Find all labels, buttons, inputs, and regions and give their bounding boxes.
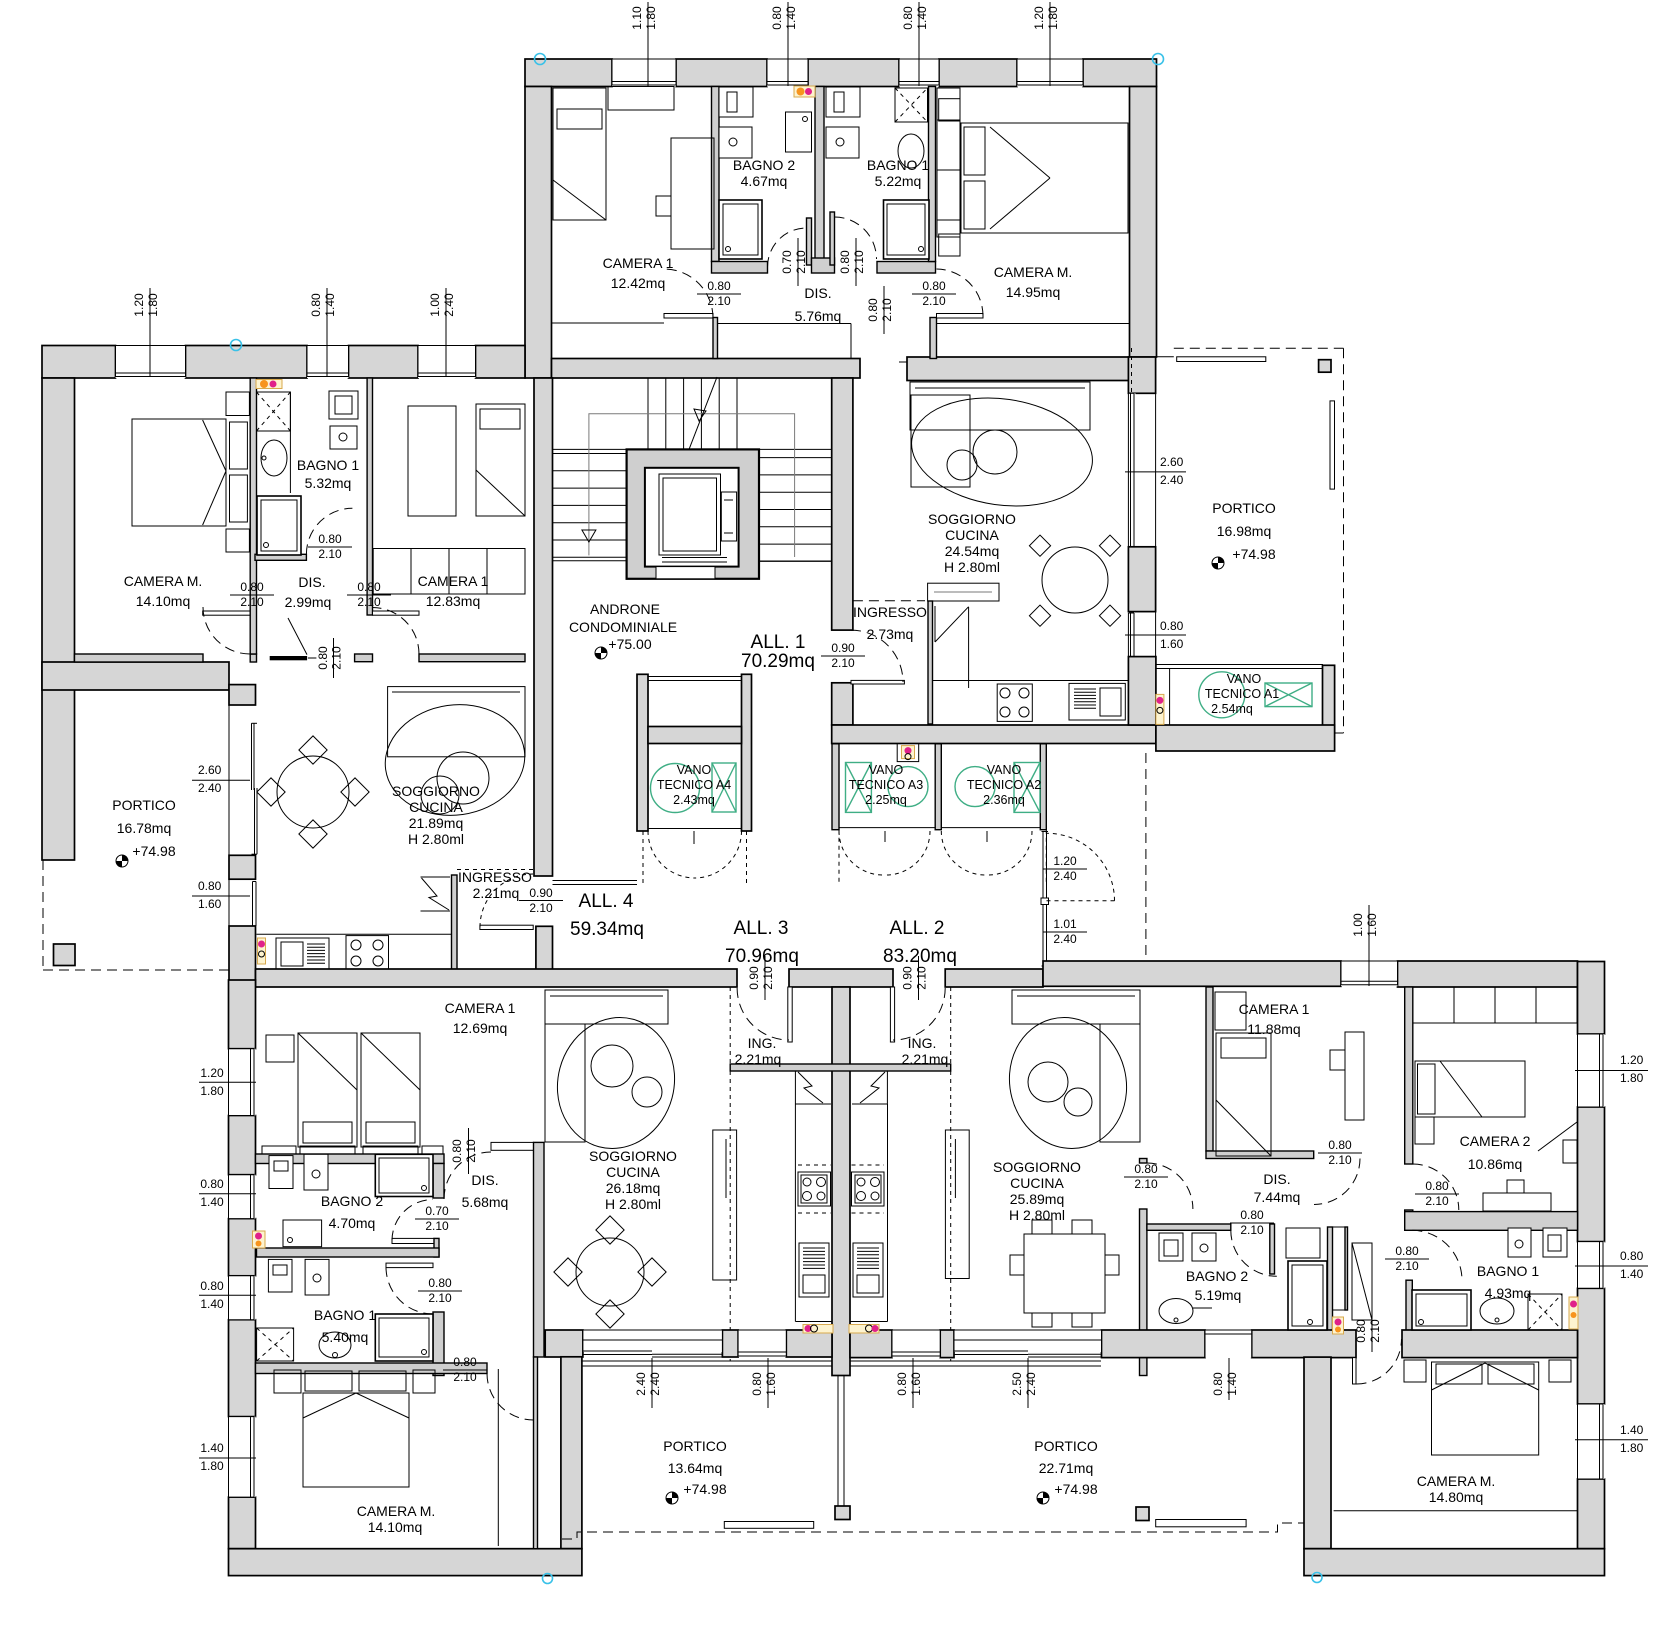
svg-text:1.80: 1.80 <box>200 1084 224 1098</box>
svg-text:0.70: 0.70 <box>425 1204 449 1218</box>
svg-text:25.89mq: 25.89mq <box>1010 1191 1064 1207</box>
svg-text:TECNICO A2: TECNICO A2 <box>967 778 1041 792</box>
svg-text:0.80: 0.80 <box>450 1139 464 1163</box>
svg-text:2.10: 2.10 <box>1368 1319 1382 1343</box>
svg-text:1.20: 1.20 <box>132 293 146 317</box>
svg-text:0.80: 0.80 <box>198 879 222 893</box>
svg-text:2.21mq: 2.21mq <box>473 885 520 901</box>
svg-text:CUCINA: CUCINA <box>945 527 999 543</box>
svg-text:0.80: 0.80 <box>1425 1179 1449 1193</box>
svg-text:0.80: 0.80 <box>453 1355 477 1369</box>
svg-text:VANO: VANO <box>1227 672 1262 686</box>
svg-text:CUCINA: CUCINA <box>606 1164 660 1180</box>
svg-text:1.00: 1.00 <box>428 293 442 317</box>
svg-text:+74.98: +74.98 <box>132 843 175 859</box>
svg-text:2.40: 2.40 <box>442 293 456 317</box>
svg-text:BAGNO 1: BAGNO 1 <box>314 1307 376 1323</box>
svg-text:2.10: 2.10 <box>428 1291 452 1305</box>
svg-text:2.10: 2.10 <box>707 294 731 308</box>
svg-text:0.80: 0.80 <box>1395 1244 1419 1258</box>
svg-text:+74.98: +74.98 <box>683 1481 726 1497</box>
svg-text:2.40: 2.40 <box>648 1372 662 1396</box>
svg-text:DIS.: DIS. <box>804 285 831 301</box>
svg-text:1.80: 1.80 <box>1046 6 1060 30</box>
svg-text:59.34mq: 59.34mq <box>570 919 644 940</box>
svg-text:2.10: 2.10 <box>240 595 264 609</box>
svg-text:14.10mq: 14.10mq <box>136 593 190 609</box>
svg-text:12.69mq: 12.69mq <box>453 1020 507 1036</box>
svg-text:0.80: 0.80 <box>1240 1208 1264 1222</box>
svg-text:ALL. 3: ALL. 3 <box>734 918 789 939</box>
svg-text:2.10: 2.10 <box>880 298 894 322</box>
svg-text:2.40: 2.40 <box>634 1372 648 1396</box>
svg-text:5.76mq: 5.76mq <box>795 308 842 324</box>
svg-text:H 2.80ml: H 2.80ml <box>408 831 464 847</box>
svg-text:2.10: 2.10 <box>1134 1177 1158 1191</box>
svg-text:2.10: 2.10 <box>425 1219 449 1233</box>
svg-text:0.80: 0.80 <box>309 293 323 317</box>
svg-text:2.36mq: 2.36mq <box>983 793 1025 807</box>
svg-text:0.80: 0.80 <box>838 250 852 274</box>
svg-text:TECNICO A3: TECNICO A3 <box>849 778 923 792</box>
svg-text:CAMERA M.: CAMERA M. <box>357 1503 436 1519</box>
svg-text:0.90: 0.90 <box>901 966 915 990</box>
svg-text:0.80: 0.80 <box>922 279 946 293</box>
svg-text:ING.: ING. <box>908 1035 937 1051</box>
svg-text:H 2.80ml: H 2.80ml <box>605 1196 661 1212</box>
svg-text:2.99mq: 2.99mq <box>285 594 332 610</box>
svg-text:0.80: 0.80 <box>1211 1372 1225 1396</box>
svg-text:2.40: 2.40 <box>198 781 222 795</box>
svg-text:24.54mq: 24.54mq <box>945 543 999 559</box>
svg-text:CAMERA M.: CAMERA M. <box>994 264 1073 280</box>
svg-text:ALL. 1: ALL. 1 <box>751 632 806 653</box>
svg-text:12.42mq: 12.42mq <box>611 275 665 291</box>
svg-text:DIS.: DIS. <box>298 574 325 590</box>
svg-text:14.95mq: 14.95mq <box>1006 284 1060 300</box>
svg-text:1.40: 1.40 <box>323 293 337 317</box>
svg-text:0.80: 0.80 <box>1134 1162 1158 1176</box>
svg-text:PORTICO: PORTICO <box>1212 500 1276 516</box>
svg-text:1.60: 1.60 <box>1365 913 1379 937</box>
svg-text:22.71mq: 22.71mq <box>1039 1460 1093 1476</box>
svg-text:4.70mq: 4.70mq <box>329 1215 376 1231</box>
svg-text:2.10: 2.10 <box>357 595 381 609</box>
svg-text:1.10: 1.10 <box>630 6 644 30</box>
svg-text:2.10: 2.10 <box>915 966 929 990</box>
svg-text:1.80: 1.80 <box>1620 1441 1644 1455</box>
svg-text:11.88mq: 11.88mq <box>1247 1021 1300 1037</box>
svg-text:BAGNO 1: BAGNO 1 <box>867 157 929 173</box>
svg-text:1.80: 1.80 <box>146 293 160 317</box>
svg-text:2.10: 2.10 <box>922 294 946 308</box>
svg-text:0.70: 0.70 <box>780 250 794 274</box>
svg-text:1.40: 1.40 <box>1620 1267 1644 1281</box>
svg-text:1.01: 1.01 <box>1053 917 1077 931</box>
svg-text:CAMERA M.: CAMERA M. <box>124 573 203 589</box>
svg-text:BAGNO 1: BAGNO 1 <box>297 457 359 473</box>
svg-text:70.96mq: 70.96mq <box>725 946 799 967</box>
svg-text:1.20: 1.20 <box>1053 854 1077 868</box>
svg-text:2.10: 2.10 <box>852 250 866 274</box>
svg-text:1.80: 1.80 <box>644 6 658 30</box>
svg-text:1.20: 1.20 <box>1620 1053 1644 1067</box>
svg-text:2.10: 2.10 <box>1425 1194 1449 1208</box>
svg-text:DIS.: DIS. <box>1263 1171 1290 1187</box>
svg-text:1.20: 1.20 <box>200 1066 224 1080</box>
svg-text:5.22mq: 5.22mq <box>875 173 922 189</box>
svg-text:1.60: 1.60 <box>764 1372 778 1396</box>
svg-text:4.67mq: 4.67mq <box>741 173 788 189</box>
svg-text:INGRESSO: INGRESSO <box>458 869 532 885</box>
svg-text:CAMERA 1: CAMERA 1 <box>418 573 489 589</box>
svg-text:BAGNO 2: BAGNO 2 <box>1186 1268 1248 1284</box>
svg-text:0.90: 0.90 <box>747 966 761 990</box>
svg-text:0.80: 0.80 <box>1620 1249 1644 1263</box>
svg-text:1.60: 1.60 <box>198 897 222 911</box>
svg-text:2.60: 2.60 <box>1160 455 1184 469</box>
svg-text:BAGNO 2: BAGNO 2 <box>733 157 795 173</box>
svg-text:CAMERA 1: CAMERA 1 <box>603 255 674 271</box>
svg-text:ANDRONE: ANDRONE <box>590 601 660 617</box>
svg-text:0.80: 0.80 <box>1354 1319 1368 1343</box>
svg-text:1.40: 1.40 <box>784 6 798 30</box>
svg-text:CAMERA M.: CAMERA M. <box>1417 1473 1496 1489</box>
svg-text:2.10: 2.10 <box>1328 1153 1352 1167</box>
svg-text:0.80: 0.80 <box>240 580 264 594</box>
svg-text:VANO: VANO <box>677 763 712 777</box>
svg-text:16.98mq: 16.98mq <box>1217 523 1271 539</box>
svg-text:1.80: 1.80 <box>1620 1071 1644 1085</box>
svg-text:CUCINA: CUCINA <box>1010 1175 1064 1191</box>
svg-text:+75.00: +75.00 <box>608 636 651 652</box>
svg-text:SOGGIORNO: SOGGIORNO <box>993 1159 1081 1175</box>
svg-text:CAMERA 1: CAMERA 1 <box>1239 1001 1310 1017</box>
svg-text:0.80: 0.80 <box>200 1279 224 1293</box>
svg-text:INGRESSO: INGRESSO <box>853 604 927 620</box>
svg-text:ALL. 4: ALL. 4 <box>579 891 634 912</box>
svg-text:BAGNO 2: BAGNO 2 <box>321 1193 383 1209</box>
svg-text:2.10: 2.10 <box>330 646 344 670</box>
svg-text:2.40: 2.40 <box>1053 869 1077 883</box>
svg-text:70.29mq: 70.29mq <box>741 651 815 672</box>
svg-text:1.00: 1.00 <box>1351 913 1365 937</box>
svg-text:2.10: 2.10 <box>1240 1223 1264 1237</box>
svg-text:2.10: 2.10 <box>464 1139 478 1163</box>
svg-text:2.40: 2.40 <box>1160 473 1184 487</box>
svg-text:TECNICO A4: TECNICO A4 <box>657 778 731 792</box>
svg-text:DIS.: DIS. <box>471 1172 498 1188</box>
svg-text:2.60: 2.60 <box>198 763 222 777</box>
svg-text:0.80: 0.80 <box>750 1372 764 1396</box>
svg-text:2.50: 2.50 <box>1010 1372 1024 1396</box>
svg-text:12.83mq: 12.83mq <box>426 593 480 609</box>
svg-text:0.80: 0.80 <box>866 298 880 322</box>
svg-text:2.73mq: 2.73mq <box>867 626 914 642</box>
svg-text:SOGGIORNO: SOGGIORNO <box>589 1148 677 1164</box>
svg-text:SOGGIORNO: SOGGIORNO <box>392 783 480 799</box>
svg-text:2.54mq: 2.54mq <box>1211 702 1253 716</box>
svg-text:1.20: 1.20 <box>1032 6 1046 30</box>
svg-text:0.80: 0.80 <box>770 6 784 30</box>
svg-text:1.40: 1.40 <box>200 1195 224 1209</box>
svg-text:83.20mq: 83.20mq <box>883 946 957 967</box>
svg-text:0.80: 0.80 <box>316 646 330 670</box>
svg-text:ING.: ING. <box>748 1035 777 1051</box>
svg-text:PORTICO: PORTICO <box>663 1438 727 1454</box>
svg-text:5.68mq: 5.68mq <box>462 1194 509 1210</box>
svg-text:2.40: 2.40 <box>1053 932 1077 946</box>
svg-text:7.44mq: 7.44mq <box>1254 1189 1301 1205</box>
svg-text:0.80: 0.80 <box>1328 1138 1352 1152</box>
svg-text:10.86mq: 10.86mq <box>1468 1156 1522 1172</box>
svg-text:2.21mq: 2.21mq <box>735 1051 782 1067</box>
svg-text:+74.98: +74.98 <box>1232 546 1275 562</box>
svg-text:2.10: 2.10 <box>453 1370 477 1384</box>
svg-text:CAMERA 2: CAMERA 2 <box>1460 1133 1531 1149</box>
svg-text:0.80: 0.80 <box>357 580 381 594</box>
svg-text:5.40mq: 5.40mq <box>322 1329 369 1345</box>
svg-text:ALL. 2: ALL. 2 <box>890 918 945 939</box>
svg-text:1.40: 1.40 <box>200 1441 224 1455</box>
svg-text:1.60: 1.60 <box>1160 637 1184 651</box>
svg-text:0.80: 0.80 <box>318 532 342 546</box>
svg-text:13.64mq: 13.64mq <box>668 1460 722 1476</box>
svg-text:H 2.80ml: H 2.80ml <box>1009 1207 1065 1223</box>
svg-text:0.80: 0.80 <box>1160 619 1184 633</box>
svg-text:CONDOMINIALE: CONDOMINIALE <box>569 619 677 635</box>
svg-text:0.80: 0.80 <box>707 279 731 293</box>
svg-text:2.10: 2.10 <box>831 656 855 670</box>
svg-text:2.10: 2.10 <box>1395 1259 1419 1273</box>
svg-text:0.90: 0.90 <box>831 641 855 655</box>
svg-text:5.32mq: 5.32mq <box>305 475 352 491</box>
svg-text:2.25mq: 2.25mq <box>865 793 907 807</box>
svg-text:CAMERA 1: CAMERA 1 <box>445 1000 516 1016</box>
svg-text:1.40: 1.40 <box>915 6 929 30</box>
svg-text:BAGNO 1: BAGNO 1 <box>1477 1263 1539 1279</box>
svg-text:PORTICO: PORTICO <box>1034 1438 1098 1454</box>
svg-text:VANO: VANO <box>869 763 904 777</box>
svg-text:14.10mq: 14.10mq <box>368 1519 422 1535</box>
svg-text:1.40: 1.40 <box>200 1297 224 1311</box>
svg-text:21.89mq: 21.89mq <box>409 815 463 831</box>
svg-text:1.60: 1.60 <box>909 1372 923 1396</box>
svg-text:1.40: 1.40 <box>1620 1423 1644 1437</box>
svg-text:5.19mq: 5.19mq <box>1195 1287 1242 1303</box>
svg-text:2.40: 2.40 <box>1024 1372 1038 1396</box>
svg-text:PORTICO: PORTICO <box>112 797 176 813</box>
svg-text:VANO: VANO <box>987 763 1022 777</box>
svg-text:H 2.80ml: H 2.80ml <box>944 559 1000 575</box>
svg-text:TECNICO A1: TECNICO A1 <box>1205 687 1279 701</box>
svg-text:0.90: 0.90 <box>529 886 553 900</box>
svg-text:0.80: 0.80 <box>901 6 915 30</box>
svg-text:+74.98: +74.98 <box>1054 1481 1097 1497</box>
svg-text:2.10: 2.10 <box>794 250 808 274</box>
svg-text:0.80: 0.80 <box>200 1177 224 1191</box>
svg-text:2.43mq: 2.43mq <box>673 793 715 807</box>
svg-text:0.80: 0.80 <box>895 1372 909 1396</box>
svg-text:SOGGIORNO: SOGGIORNO <box>928 511 1016 527</box>
svg-text:16.78mq: 16.78mq <box>117 820 171 836</box>
svg-text:2.10: 2.10 <box>318 547 342 561</box>
svg-text:1.40: 1.40 <box>1225 1372 1239 1396</box>
svg-text:2.10: 2.10 <box>761 966 775 990</box>
svg-text:1.80: 1.80 <box>200 1459 224 1473</box>
svg-text:2.21mq: 2.21mq <box>902 1051 949 1067</box>
svg-text:14.80mq: 14.80mq <box>1429 1489 1483 1505</box>
svg-text:2.10: 2.10 <box>529 901 553 915</box>
svg-text:0.80: 0.80 <box>428 1276 452 1290</box>
svg-text:26.18mq: 26.18mq <box>606 1180 660 1196</box>
